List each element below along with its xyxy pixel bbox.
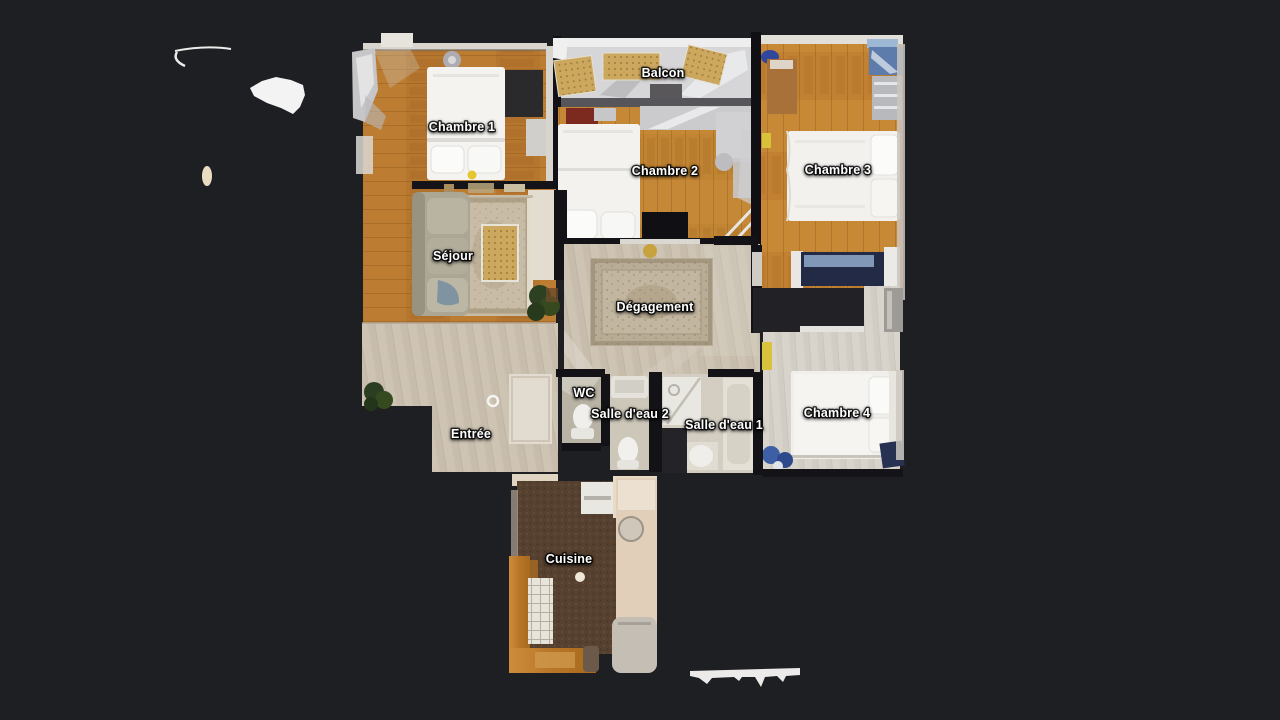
svg-text:Chambre 3: Chambre 3 bbox=[805, 163, 871, 177]
svg-text:Chambre 4: Chambre 4 bbox=[804, 406, 870, 420]
svg-text:Dégagement: Dégagement bbox=[616, 300, 694, 314]
svg-text:Balcon: Balcon bbox=[642, 66, 685, 80]
svg-text:Cuisine: Cuisine bbox=[546, 552, 593, 566]
svg-text:Salle d'eau 2: Salle d'eau 2 bbox=[591, 407, 669, 421]
svg-text:WC: WC bbox=[573, 386, 594, 400]
svg-text:Séjour: Séjour bbox=[433, 249, 473, 263]
svg-text:Entrée: Entrée bbox=[451, 427, 491, 441]
svg-text:Chambre 2: Chambre 2 bbox=[632, 164, 698, 178]
svg-text:Chambre 1: Chambre 1 bbox=[429, 120, 495, 134]
svg-text:Salle d'eau 1: Salle d'eau 1 bbox=[685, 418, 763, 432]
